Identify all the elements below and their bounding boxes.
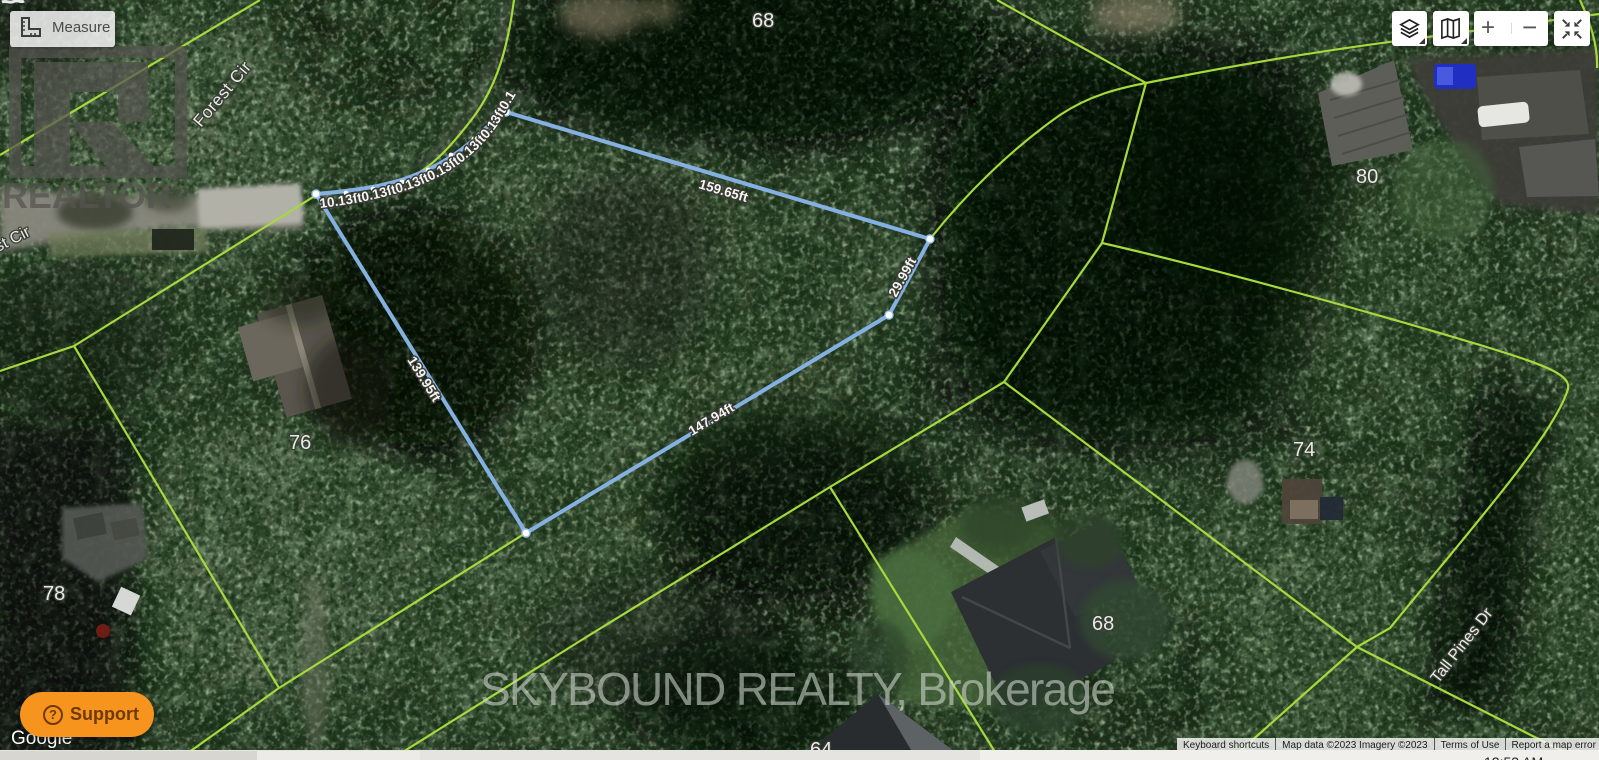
svg-text:74: 74 — [1293, 439, 1315, 461]
svg-text:78: 78 — [43, 583, 65, 605]
svg-text:76: 76 — [289, 432, 311, 454]
svg-text:80: 80 — [1356, 166, 1378, 188]
svg-text:SKYBOUND REALTY, Brokerage: SKYBOUND REALTY, Brokerage — [480, 663, 1116, 715]
svg-text:68: 68 — [752, 10, 774, 32]
svg-text:REALTOR: REALTOR — [2, 175, 172, 216]
svg-text:68: 68 — [1092, 613, 1114, 635]
